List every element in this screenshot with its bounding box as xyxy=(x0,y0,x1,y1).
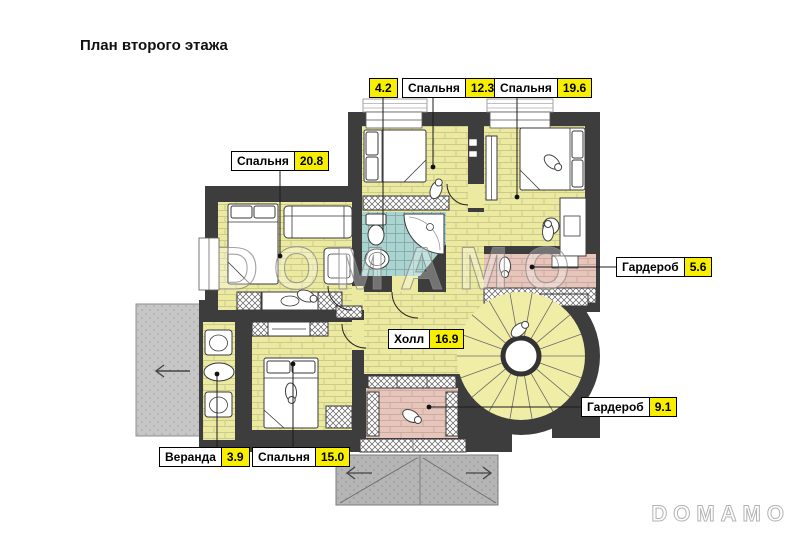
room-area: 9.1 xyxy=(649,398,677,416)
room-area: 4.2 xyxy=(370,79,397,97)
hall-wall-radiator xyxy=(336,306,362,318)
room-label-wardrobe-5-6: Гардероб5.6 xyxy=(616,257,712,277)
hall-bottom-units xyxy=(368,376,456,388)
room-name: Гардероб xyxy=(617,258,684,276)
room-name: Спальня xyxy=(495,79,557,97)
watermark-small: DOMAMO xyxy=(651,501,790,526)
room-name: Спальня xyxy=(403,79,465,97)
unit-bedroom-15-0-corner xyxy=(326,406,352,428)
watermark-large: DOMAMO xyxy=(215,235,585,302)
room-area: 19.6 xyxy=(557,79,591,97)
room-label-bedroom-15-0: Спальня15.0 xyxy=(252,447,350,467)
veranda-table xyxy=(204,363,234,381)
room-area: 3.9 xyxy=(221,448,249,466)
room-label-wardrobe-9-1: Гардероб9.1 xyxy=(581,397,677,417)
room-label-bathroom: 4.2 xyxy=(369,78,398,98)
radiator-bedroom-19-6 xyxy=(486,136,497,200)
room-label-veranda: Веранда3.9 xyxy=(159,447,250,467)
balcony-rail xyxy=(360,439,466,452)
room-name: Гардероб xyxy=(582,398,649,416)
floor-plan-page: План второго этажа xyxy=(0,0,800,533)
bed-bedroom-12-3 xyxy=(364,130,426,182)
roof-right xyxy=(420,455,498,505)
room-name: Веранда xyxy=(160,448,221,466)
spiral-staircase xyxy=(457,292,585,420)
window-bedroom-12-3 xyxy=(363,99,427,128)
room-label-bedroom-19-6: Спальня19.6 xyxy=(494,78,592,98)
dresser-bedroom-15-0 xyxy=(252,322,328,336)
veranda-armchair-2 xyxy=(205,392,232,417)
room-name: Спальня xyxy=(232,152,294,170)
room-name: Холл xyxy=(389,330,429,348)
window-bedroom-19-6 xyxy=(487,99,553,128)
room-area: 15.0 xyxy=(315,448,349,466)
room-label-bedroom-12-3: Спальня12.3 xyxy=(402,78,500,98)
room-area: 5.6 xyxy=(684,258,712,276)
room-area: 20.8 xyxy=(294,152,328,170)
room-name: Спальня xyxy=(253,448,315,466)
room-label-hall: Холл16.9 xyxy=(388,329,464,349)
room-label-bedroom-20-8: Спальня20.8 xyxy=(231,151,329,171)
sofa-bedroom-20-8 xyxy=(284,206,352,238)
terrace-area xyxy=(136,304,210,436)
veranda-armchair-1 xyxy=(205,330,232,355)
room-area: 16.9 xyxy=(429,330,463,348)
